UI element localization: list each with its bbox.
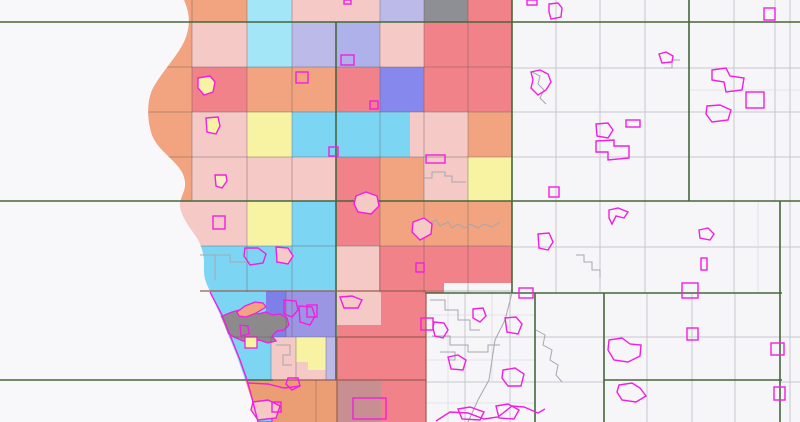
district-cell [381, 291, 426, 337]
district-cell [292, 22, 336, 67]
urban-area [240, 325, 249, 336]
district-cell [424, 0, 468, 22]
district-cell [338, 337, 426, 380]
district-cell [468, 67, 512, 112]
district-cell [380, 67, 424, 112]
district-cell [192, 0, 247, 22]
district-cell [337, 380, 381, 422]
district-cell [308, 362, 326, 370]
district-cell [286, 291, 336, 337]
district-cell [468, 201, 512, 246]
district-cell [381, 380, 426, 422]
district-cell [468, 0, 512, 22]
district-cell [296, 337, 326, 362]
district-cell [424, 22, 468, 67]
district-cell [292, 201, 336, 246]
district-cell [190, 246, 336, 291]
district-cell [292, 157, 336, 201]
district-cell [379, 246, 426, 291]
district-cell [247, 112, 292, 157]
district-cell [336, 22, 380, 67]
city-outline [354, 192, 379, 214]
district-cell [468, 22, 512, 67]
district-cell [380, 112, 410, 157]
district-cell [410, 112, 468, 157]
district-cell [192, 112, 247, 157]
district-cell [380, 22, 424, 67]
gis-map-viewport[interactable] [0, 0, 800, 422]
district-cell [247, 157, 292, 201]
district-cell [424, 67, 468, 112]
district-cell [247, 0, 292, 22]
land-patch [245, 337, 257, 348]
district-cell [380, 0, 424, 22]
district-cell [468, 157, 512, 201]
district-cell [192, 201, 247, 246]
district-cell [247, 201, 292, 246]
district-cell [192, 22, 247, 67]
district-cell [292, 67, 336, 112]
district-cell [247, 67, 292, 112]
district-cell [380, 157, 424, 201]
district-cell [292, 0, 336, 22]
district-cell [336, 246, 379, 291]
district-cell [336, 0, 380, 22]
city-outline [206, 117, 220, 134]
district-cell [336, 112, 380, 157]
district-cell [247, 22, 292, 67]
gis-map-canvas[interactable] [0, 0, 800, 422]
district-cell [336, 67, 380, 112]
district-cell [468, 112, 512, 157]
